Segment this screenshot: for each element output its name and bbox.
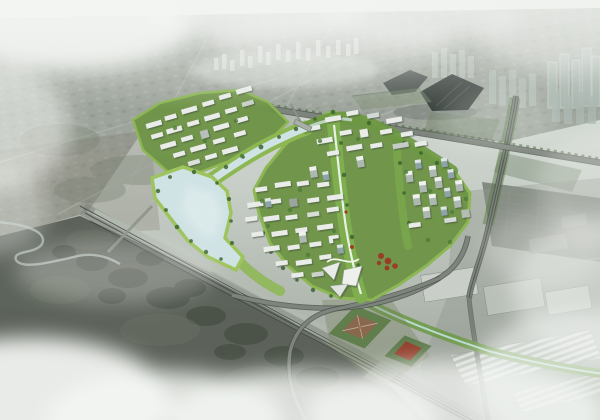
- aerial-rendering-frame: [0, 0, 600, 420]
- aerial-rendering: [0, 0, 600, 420]
- top-haze: [0, 0, 600, 110]
